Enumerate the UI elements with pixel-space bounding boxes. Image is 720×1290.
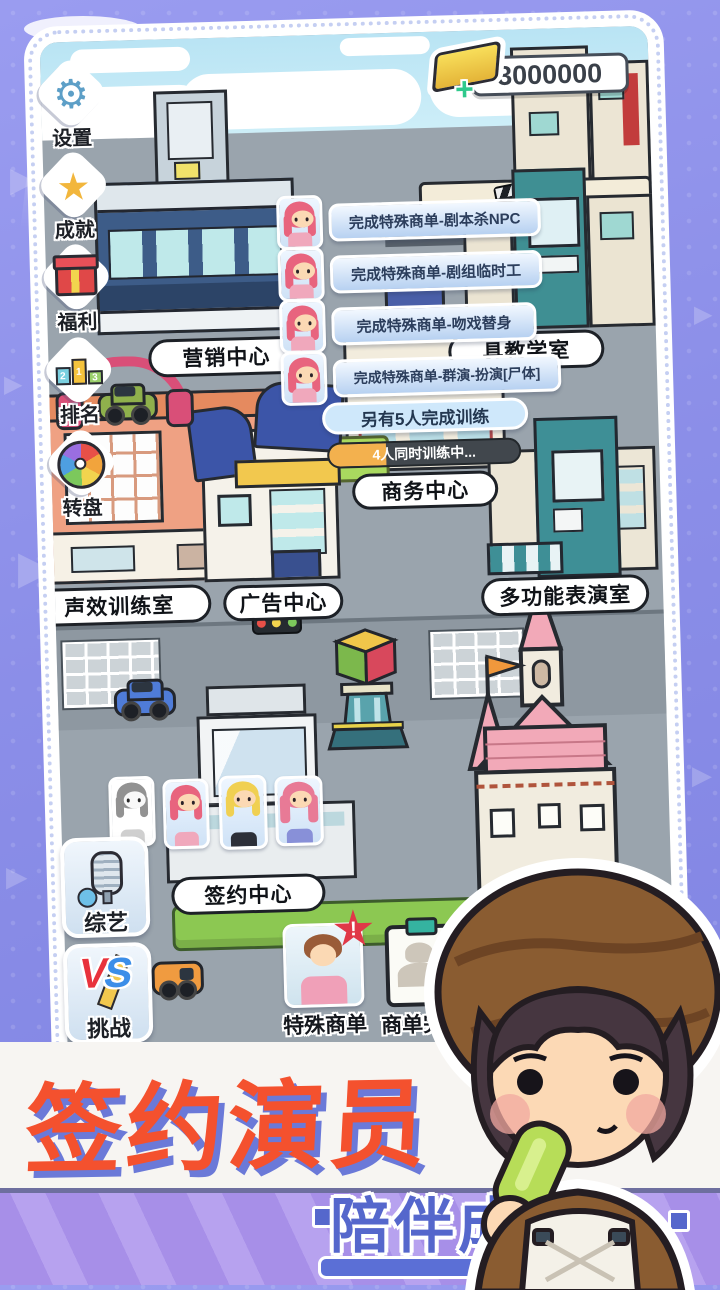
label-sound-training-room[interactable]: 声效训练室 <box>27 584 212 627</box>
ground-floor <box>100 306 295 332</box>
variety-label: 综艺 <box>66 904 147 938</box>
door <box>271 549 322 577</box>
building-marketing-center[interactable] <box>94 178 298 336</box>
play-icon: ▶ <box>692 760 712 791</box>
shop-window <box>71 545 136 573</box>
gear-icon: ⚙ <box>30 67 111 123</box>
ranking-button[interactable]: 2 1 3 排名 <box>38 338 120 429</box>
npc-face <box>310 944 337 967</box>
yellow-band <box>234 457 341 488</box>
wheel-button[interactable]: 转盘 <box>40 431 122 522</box>
cloud <box>340 36 430 57</box>
earcup <box>165 389 194 428</box>
gift-icon <box>35 251 116 307</box>
tower-panel <box>166 101 214 160</box>
settings-button[interactable]: ⚙ 设置 <box>30 61 112 152</box>
trophy-icon: ★ <box>33 159 114 215</box>
building-window <box>217 494 252 527</box>
promo-headline: 签约演员 <box>22 1044 434 1192</box>
special-orders-label: 特殊商单 <box>275 1008 376 1041</box>
task-text: 完成特殊商单-剧本杀NPC <box>328 198 541 242</box>
roof-band <box>97 181 292 213</box>
actor-card-pink[interactable] <box>162 778 210 849</box>
actress-avatar <box>279 299 326 354</box>
special-orders-button[interactable]: ! 特殊商单 <box>272 922 375 1041</box>
building-marketing-tower[interactable] <box>153 90 230 188</box>
play-icon: ▶ <box>694 300 712 329</box>
actor-card-twintail[interactable] <box>274 775 324 846</box>
progress-text: 4人同时训练中... <box>329 439 520 466</box>
task-text: 完成特殊商单-群演-扮演[尸体] <box>333 353 562 397</box>
building-window <box>551 449 604 502</box>
microphone-icon <box>90 851 123 896</box>
add-currency-button[interactable]: + <box>455 71 475 109</box>
actress-avatar <box>276 195 323 250</box>
tower-cap <box>206 684 307 717</box>
task-text: 完成特殊商单-剧组临时工 <box>330 250 543 294</box>
app-root: { "hud": { "currency": {"value": "300000… <box>0 0 720 1280</box>
podium-icon: 2 1 3 <box>38 344 119 400</box>
vs-s: S <box>101 948 136 997</box>
rubiks-cube-monument[interactable] <box>322 625 412 755</box>
training-progress-bar[interactable]: 4人同时训练中... <box>327 437 522 468</box>
label-multi-room[interactable]: 多功能表演室 <box>481 574 650 617</box>
welfare-button[interactable]: 福利 <box>35 245 117 336</box>
actress-avatar <box>277 247 324 302</box>
variety-show-button[interactable]: 综艺 <box>60 836 151 938</box>
tower-light <box>174 161 200 180</box>
building-window <box>529 111 560 136</box>
window-strip <box>269 488 327 556</box>
special-orders-card: ! <box>282 922 364 1008</box>
building-sign <box>553 508 584 533</box>
window-strip <box>108 225 283 280</box>
task-text: 完成特殊商单-吻戏替身 <box>331 302 537 346</box>
play-icon: ▶ <box>4 370 22 399</box>
van-orange <box>151 961 204 996</box>
actor-card-blonde[interactable] <box>218 775 268 850</box>
building-multi-room[interactable] <box>487 446 658 575</box>
label-business-center[interactable]: 商务中心 <box>352 470 499 510</box>
achievements-button[interactable]: ★ 成就 <box>33 153 115 244</box>
label-signing-center[interactable]: 签约中心 <box>171 873 326 915</box>
building-prop-annex-right <box>586 194 656 328</box>
building-ad-center[interactable] <box>200 427 340 583</box>
training-complete-banner[interactable]: 另有5人完成训练 <box>322 397 529 435</box>
label-ad-center[interactable]: 广告中心 <box>223 582 344 621</box>
wheel-icon <box>41 437 122 493</box>
npc-body <box>301 976 348 1005</box>
challenge-button[interactable]: VS 挑战 <box>63 942 154 1044</box>
mascot-girl <box>418 840 720 1290</box>
actress-avatar <box>280 351 327 406</box>
building-window <box>600 211 635 240</box>
car-blue <box>114 687 177 717</box>
play-icon: ▶ <box>6 860 28 893</box>
challenge-label: 挑战 <box>69 1010 150 1044</box>
